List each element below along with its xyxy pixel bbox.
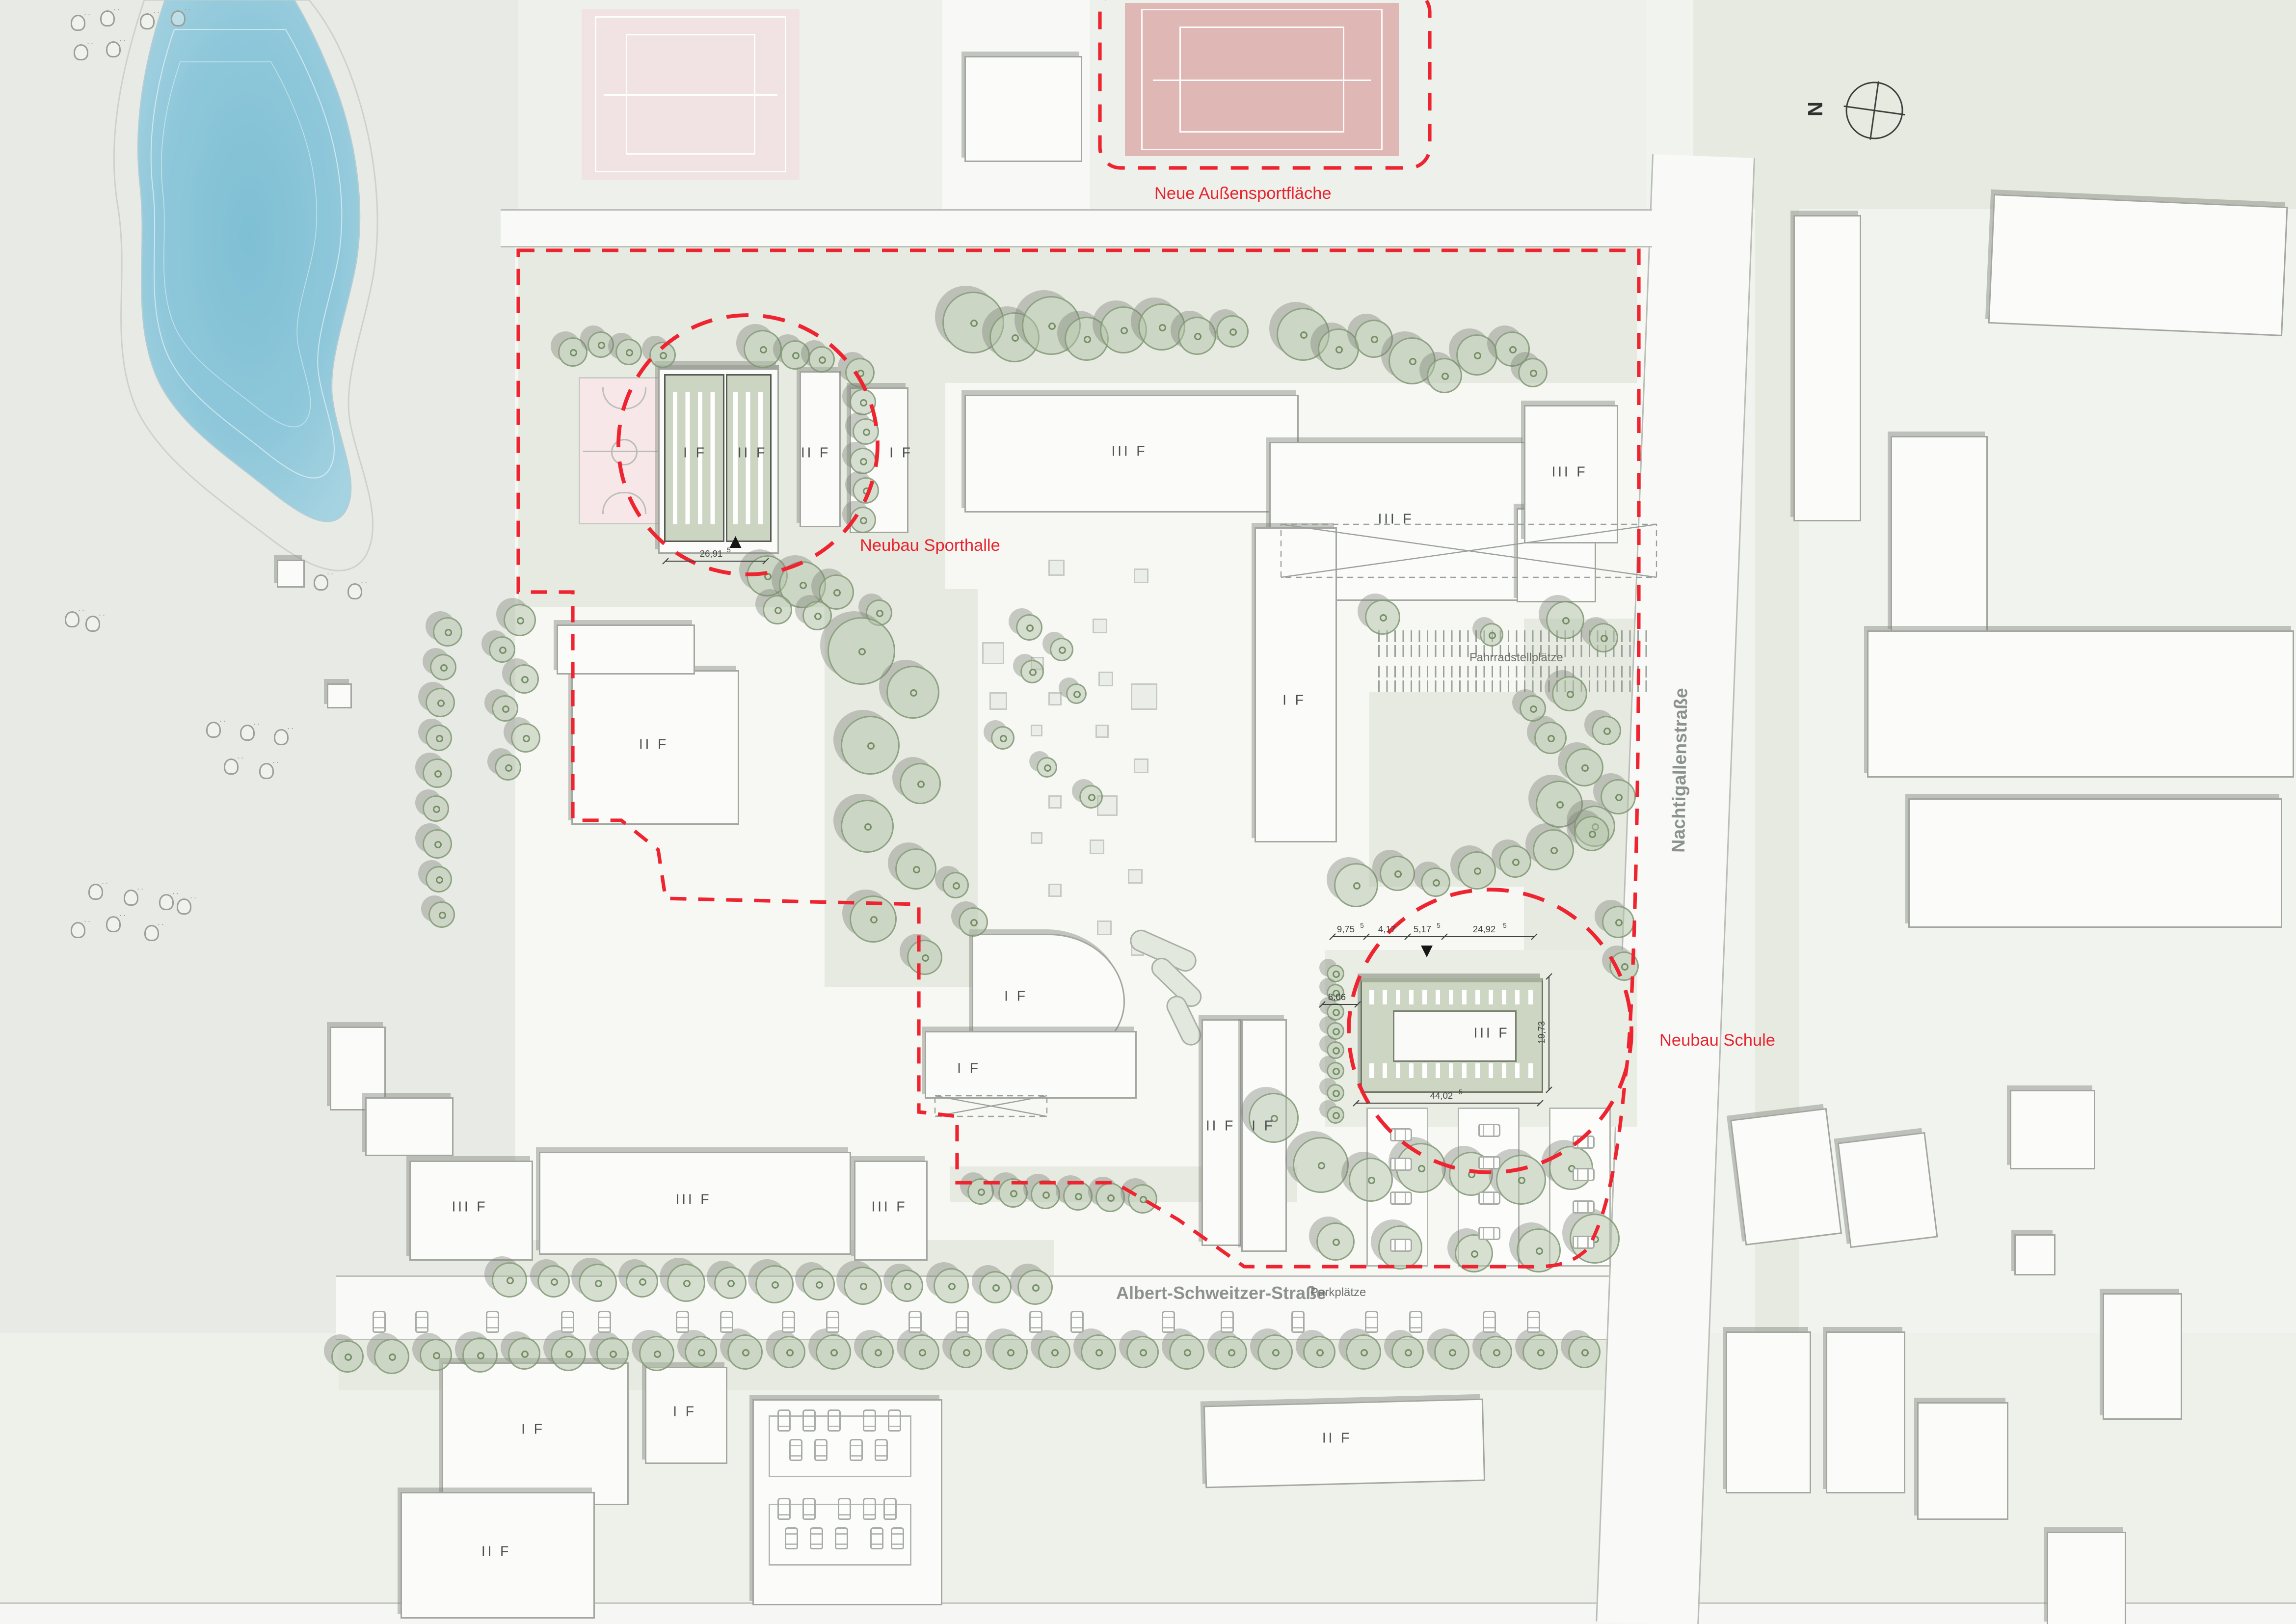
school-window-band-bottom bbox=[1369, 1063, 1534, 1078]
lawn-patch bbox=[1693, 0, 2296, 209]
car-icon bbox=[1162, 1311, 1175, 1333]
tree-icon bbox=[1434, 1334, 1469, 1370]
tree-icon bbox=[1017, 1270, 1053, 1305]
tree-icon bbox=[1421, 867, 1450, 897]
courtyard-pad bbox=[1095, 725, 1109, 738]
tree-icon bbox=[1574, 816, 1609, 851]
bike-racks-row bbox=[1378, 680, 1652, 692]
tree-icon bbox=[1095, 1183, 1125, 1212]
shrub-icon bbox=[106, 41, 121, 57]
building bbox=[1908, 798, 2282, 928]
floor-count-label: I F bbox=[889, 446, 913, 462]
tree-icon bbox=[587, 331, 614, 358]
shrub-icon bbox=[177, 898, 191, 915]
tree-icon bbox=[1327, 1106, 1344, 1124]
tree-icon bbox=[1365, 599, 1400, 635]
car-icon bbox=[1029, 1311, 1042, 1333]
floor-count-label: III F bbox=[675, 1192, 711, 1209]
courtyard-pad bbox=[1093, 619, 1107, 633]
tree-icon bbox=[1327, 1003, 1344, 1021]
tree-icon bbox=[667, 1264, 705, 1302]
car-icon bbox=[802, 1409, 816, 1432]
tree-icon bbox=[1063, 1181, 1093, 1211]
tree-icon bbox=[967, 1178, 994, 1205]
label-fahrradstellplaetze: Fahrradstellplätze bbox=[1469, 651, 1563, 664]
tree-icon bbox=[1589, 623, 1618, 652]
tree-icon bbox=[1349, 1158, 1393, 1202]
basketball-court bbox=[579, 377, 667, 524]
tree-icon bbox=[1178, 317, 1216, 355]
car-icon bbox=[1070, 1311, 1084, 1333]
tree-icon bbox=[1327, 1022, 1344, 1040]
tree-icon bbox=[1334, 863, 1378, 907]
floor-count-label: III F bbox=[452, 1200, 487, 1216]
tree-icon bbox=[615, 339, 642, 365]
car-icon bbox=[850, 1439, 863, 1461]
building bbox=[925, 1031, 1137, 1099]
tree-icon bbox=[1520, 695, 1546, 722]
courtyard-pad bbox=[1048, 560, 1065, 576]
tree-icon bbox=[950, 1336, 982, 1368]
car-icon bbox=[1390, 1128, 1412, 1141]
floor-count-label: I F bbox=[521, 1422, 545, 1438]
building bbox=[1917, 1402, 2008, 1520]
car-icon bbox=[863, 1409, 876, 1432]
tree-icon bbox=[685, 1336, 717, 1368]
tree-icon bbox=[714, 1267, 747, 1299]
plan-canvas: I FII FII FI FIII FIII FIII FI FII FI FI… bbox=[0, 0, 2296, 1624]
floor-count-label: I F bbox=[1282, 693, 1306, 709]
shrub-icon bbox=[171, 10, 186, 27]
tree-icon bbox=[1327, 965, 1344, 982]
tree-icon bbox=[1016, 614, 1042, 641]
tennis-net-line bbox=[1152, 80, 1371, 81]
tree-icon bbox=[1126, 1336, 1159, 1368]
floor-count-label: III F bbox=[1551, 465, 1587, 481]
shrub-icon bbox=[224, 758, 239, 775]
tree-icon bbox=[1534, 722, 1567, 754]
tree-icon bbox=[426, 866, 452, 893]
tree-icon bbox=[331, 1340, 364, 1373]
tree-icon bbox=[1565, 748, 1603, 786]
tree-icon bbox=[1216, 315, 1249, 348]
car-icon bbox=[676, 1311, 689, 1333]
tree-icon bbox=[1456, 334, 1497, 376]
car-icon bbox=[789, 1439, 802, 1461]
car-icon bbox=[1573, 1168, 1595, 1181]
shrub-icon bbox=[74, 44, 88, 60]
car-icon bbox=[1365, 1311, 1378, 1333]
tree-icon bbox=[596, 1337, 629, 1370]
car-icon bbox=[1483, 1311, 1496, 1333]
tree-icon bbox=[1518, 358, 1548, 387]
tree-icon bbox=[426, 725, 452, 751]
label-nachtigallenstrasse: Nachtigallenstraße bbox=[1668, 688, 1692, 853]
tree-icon bbox=[907, 940, 942, 975]
tree-icon bbox=[1517, 1228, 1561, 1272]
label-new-sport-area: Neue Außensportfläche bbox=[1154, 186, 1332, 203]
building bbox=[327, 683, 352, 708]
tree-icon bbox=[1480, 1336, 1512, 1368]
courtyard-pad bbox=[1048, 884, 1062, 897]
car-icon bbox=[891, 1527, 904, 1549]
floor-count-label: III F bbox=[1473, 1026, 1509, 1042]
tree-icon bbox=[639, 1336, 674, 1371]
car-icon bbox=[883, 1498, 897, 1520]
tree-icon bbox=[511, 723, 540, 753]
tree-icon bbox=[850, 895, 897, 943]
car-icon bbox=[561, 1311, 574, 1333]
building bbox=[1891, 436, 1988, 633]
court-key-arc-top bbox=[602, 387, 646, 409]
courtyard-pad bbox=[1048, 795, 1062, 809]
tree-icon bbox=[850, 507, 876, 533]
car-icon bbox=[1527, 1311, 1540, 1333]
tree-icon bbox=[1079, 785, 1103, 809]
tree-icon bbox=[853, 418, 879, 445]
building bbox=[1838, 1132, 1938, 1248]
tree-icon bbox=[850, 389, 876, 415]
tree-icon bbox=[1391, 1336, 1424, 1368]
tree-icon bbox=[773, 1336, 805, 1368]
shrub-icon bbox=[159, 894, 174, 910]
tree-icon bbox=[1496, 1155, 1546, 1205]
tree-icon bbox=[1602, 906, 1634, 938]
car-icon bbox=[598, 1311, 611, 1333]
tree-icon bbox=[1050, 638, 1073, 661]
tree-icon bbox=[495, 754, 521, 781]
tree-icon bbox=[433, 617, 462, 647]
tree-icon bbox=[1427, 358, 1462, 393]
floor-count-label: III F bbox=[1378, 512, 1414, 528]
building bbox=[1730, 1108, 1842, 1245]
car-icon bbox=[415, 1311, 428, 1333]
tree-icon bbox=[1480, 623, 1503, 647]
tree-icon bbox=[430, 654, 456, 680]
tree-icon bbox=[1533, 829, 1574, 870]
tree-icon bbox=[1568, 1336, 1601, 1368]
car-icon bbox=[1573, 1200, 1595, 1214]
tree-icon bbox=[579, 1264, 617, 1302]
tree-icon bbox=[900, 763, 941, 804]
courtyard-pad bbox=[982, 642, 1004, 664]
courtyard-pad bbox=[1097, 920, 1112, 935]
tree-icon bbox=[626, 1265, 658, 1298]
tree-icon bbox=[763, 595, 792, 624]
building bbox=[277, 560, 305, 588]
building bbox=[1826, 1331, 1905, 1493]
building bbox=[964, 56, 1082, 162]
car-icon bbox=[835, 1527, 848, 1549]
car-icon bbox=[863, 1498, 876, 1520]
label-albert-schweitzer-strasse: Albert-Schweitzer-Straße bbox=[1116, 1283, 1326, 1303]
building bbox=[557, 624, 695, 675]
car-icon bbox=[908, 1311, 922, 1333]
car-icon bbox=[1478, 1156, 1500, 1169]
car-icon bbox=[1390, 1158, 1412, 1171]
building bbox=[2014, 1234, 2056, 1275]
floor-count-label: I F bbox=[1252, 1119, 1275, 1135]
building bbox=[2010, 1090, 2095, 1169]
tree-icon bbox=[744, 330, 782, 368]
floor-count-label: I F bbox=[673, 1405, 696, 1421]
tree-icon bbox=[1293, 1137, 1349, 1193]
tree-icon bbox=[1066, 683, 1087, 704]
tree-icon bbox=[508, 1337, 540, 1370]
car-icon bbox=[956, 1311, 969, 1333]
tree-icon bbox=[844, 1267, 882, 1305]
tree-icon bbox=[1552, 676, 1587, 711]
floor-count-label: III F bbox=[871, 1200, 907, 1216]
bottom-road bbox=[0, 1602, 2296, 1624]
tree-icon bbox=[755, 1265, 794, 1303]
building bbox=[2103, 1293, 2182, 1420]
tree-icon bbox=[504, 604, 536, 636]
shrub-icon bbox=[274, 729, 289, 745]
tree-icon bbox=[853, 477, 879, 504]
courtyard-pad bbox=[1090, 839, 1104, 854]
tennis-court-new bbox=[1125, 3, 1399, 156]
car-icon bbox=[875, 1439, 888, 1461]
tree-icon bbox=[979, 1271, 1012, 1303]
car-icon bbox=[777, 1498, 791, 1520]
floor-count-label: I F bbox=[683, 446, 707, 462]
tree-icon bbox=[489, 636, 515, 663]
building bbox=[1726, 1331, 1811, 1493]
tennis-net-line bbox=[603, 94, 777, 96]
floor-count-label: III F bbox=[1111, 444, 1147, 460]
tree-icon bbox=[423, 758, 452, 788]
car-icon bbox=[888, 1409, 901, 1432]
tree-icon bbox=[904, 1334, 939, 1370]
tree-icon bbox=[1081, 1334, 1116, 1370]
car-icon bbox=[785, 1527, 798, 1549]
label-parkplaetze: Parkplätze bbox=[1310, 1286, 1366, 1299]
tree-icon bbox=[428, 901, 455, 928]
site-plan: I FII FII FI FIII FIII FIII FI FII FI FI… bbox=[0, 0, 2296, 1624]
tree-icon bbox=[1020, 660, 1044, 683]
tree-icon bbox=[509, 664, 539, 694]
tree-icon bbox=[808, 346, 835, 373]
tree-icon bbox=[850, 448, 876, 474]
courtyard-pad bbox=[1134, 568, 1148, 583]
car-icon bbox=[814, 1439, 828, 1461]
shrub-icon bbox=[240, 725, 255, 741]
courtyard-pad bbox=[1031, 725, 1042, 736]
tree-icon bbox=[934, 1268, 969, 1303]
building bbox=[1255, 527, 1337, 842]
floor-count-label: I F bbox=[1004, 989, 1028, 1005]
building bbox=[365, 1097, 454, 1156]
tree-icon bbox=[423, 829, 452, 859]
tree-icon bbox=[1592, 716, 1621, 745]
car-icon bbox=[777, 1409, 791, 1432]
tree-icon bbox=[492, 1262, 527, 1298]
tennis-court-existing bbox=[582, 9, 800, 180]
tree-icon bbox=[1327, 1041, 1344, 1059]
car-icon bbox=[1221, 1311, 1234, 1333]
tree-icon bbox=[423, 795, 449, 822]
tree-icon bbox=[1522, 1334, 1558, 1370]
tree-icon bbox=[1355, 320, 1393, 358]
shrub-icon bbox=[85, 616, 100, 632]
floor-count-label: II F bbox=[481, 1544, 511, 1561]
building bbox=[1867, 630, 2294, 778]
tree-icon bbox=[1380, 856, 1415, 891]
tree-icon bbox=[374, 1339, 409, 1374]
tree-icon bbox=[992, 1334, 1028, 1370]
tree-icon bbox=[959, 907, 988, 937]
shrub-icon bbox=[106, 916, 121, 932]
tree-icon bbox=[828, 617, 895, 685]
courtyard-pad bbox=[989, 692, 1007, 710]
car-icon bbox=[1478, 1227, 1500, 1240]
tree-icon bbox=[1031, 1180, 1060, 1209]
car-icon bbox=[870, 1527, 883, 1549]
courtyard-pad bbox=[1031, 832, 1042, 844]
car-icon bbox=[838, 1498, 851, 1520]
tree-icon bbox=[991, 726, 1015, 750]
shrub-icon bbox=[314, 574, 328, 591]
shrub-icon bbox=[206, 722, 221, 738]
car-icon bbox=[782, 1311, 795, 1333]
tree-icon bbox=[426, 688, 455, 717]
tree-icon bbox=[1318, 328, 1359, 370]
courtyard-pad bbox=[1131, 683, 1157, 710]
tree-icon bbox=[1499, 845, 1531, 878]
building bbox=[1988, 194, 2288, 336]
tree-icon bbox=[942, 872, 969, 898]
car-icon bbox=[828, 1409, 841, 1432]
courtyard-pad bbox=[1048, 692, 1062, 705]
tree-icon bbox=[537, 1265, 570, 1298]
tree-icon bbox=[886, 666, 939, 719]
car-icon bbox=[1390, 1191, 1412, 1205]
tree-icon bbox=[861, 1336, 894, 1368]
label-new-gym: Neubau Sporthalle bbox=[860, 538, 1000, 555]
car-icon bbox=[1573, 1236, 1595, 1249]
floor-count-label: II F bbox=[738, 446, 767, 462]
label-new-school: Neubau Schule bbox=[1659, 1032, 1775, 1050]
car-icon bbox=[810, 1527, 823, 1549]
tree-icon bbox=[1128, 1184, 1157, 1214]
tree-icon bbox=[1327, 1062, 1344, 1080]
car-icon bbox=[1478, 1191, 1500, 1205]
shrub-icon bbox=[100, 10, 115, 27]
shrub-icon bbox=[124, 890, 138, 906]
school-window-band-top bbox=[1369, 990, 1534, 1004]
floor-count-label: I F bbox=[957, 1061, 981, 1078]
tree-icon bbox=[1609, 951, 1639, 981]
tree-icon bbox=[1546, 601, 1584, 639]
court-center-circle bbox=[611, 439, 638, 465]
tree-icon bbox=[462, 1337, 498, 1373]
shrub-icon bbox=[88, 884, 103, 900]
tree-icon bbox=[1038, 1336, 1070, 1368]
tree-icon bbox=[492, 695, 518, 722]
car-icon bbox=[802, 1498, 816, 1520]
car-icon bbox=[1478, 1124, 1500, 1137]
tree-icon bbox=[841, 800, 894, 853]
car-icon bbox=[373, 1311, 386, 1333]
shrub-icon bbox=[71, 15, 85, 31]
tree-icon bbox=[1037, 757, 1057, 778]
tree-icon bbox=[1601, 779, 1636, 814]
floor-count-label: II F bbox=[639, 737, 668, 754]
courtyard-pad bbox=[1098, 672, 1113, 686]
car-icon bbox=[486, 1311, 499, 1333]
tree-icon bbox=[802, 1268, 835, 1300]
shrub-icon bbox=[144, 925, 159, 941]
car-icon bbox=[720, 1311, 733, 1333]
floor-count-label: II F bbox=[1206, 1119, 1235, 1135]
building bbox=[1793, 215, 1861, 521]
tree-icon bbox=[1215, 1336, 1247, 1368]
tree-icon bbox=[780, 340, 810, 370]
shrub-icon bbox=[65, 611, 80, 627]
tree-icon bbox=[1303, 1336, 1335, 1368]
shrub-icon bbox=[347, 583, 362, 599]
tree-icon bbox=[1346, 1334, 1381, 1370]
floor-count-label: II F bbox=[1322, 1431, 1352, 1447]
north-letter: N bbox=[1804, 102, 1827, 116]
car-icon bbox=[1573, 1136, 1595, 1149]
building bbox=[2047, 1532, 2126, 1624]
shrub-icon bbox=[71, 922, 85, 938]
tree-icon bbox=[727, 1334, 763, 1370]
courtyard-pad bbox=[1134, 758, 1148, 773]
court-key-arc-bottom bbox=[602, 492, 646, 514]
tree-icon bbox=[649, 342, 676, 368]
tree-icon bbox=[1138, 303, 1185, 351]
tree-icon bbox=[1169, 1334, 1204, 1370]
tree-icon bbox=[891, 1270, 923, 1302]
tree-icon bbox=[1327, 984, 1344, 1001]
bike-racks-row bbox=[1378, 666, 1652, 677]
car-icon bbox=[1409, 1311, 1422, 1333]
shrub-icon bbox=[259, 763, 274, 779]
north-path bbox=[501, 209, 1652, 247]
courtyard-pad bbox=[1128, 869, 1143, 884]
tree-icon bbox=[802, 601, 832, 630]
tree-icon bbox=[1257, 1334, 1293, 1370]
floor-count-label: II F bbox=[801, 446, 830, 462]
tree-icon bbox=[841, 716, 900, 775]
tree-icon bbox=[551, 1336, 586, 1371]
car-icon bbox=[1291, 1311, 1305, 1333]
tree-icon bbox=[998, 1178, 1028, 1208]
tree-icon bbox=[1458, 851, 1496, 890]
shrub-icon bbox=[140, 13, 155, 29]
tree-icon bbox=[1249, 1093, 1299, 1143]
tree-icon bbox=[895, 848, 936, 890]
tree-icon bbox=[816, 1334, 851, 1370]
tree-icon bbox=[1327, 1084, 1344, 1102]
tree-icon bbox=[420, 1339, 452, 1371]
car-icon bbox=[1390, 1239, 1412, 1252]
tree-icon bbox=[558, 337, 587, 367]
car-icon bbox=[826, 1311, 839, 1333]
tree-icon bbox=[845, 358, 875, 387]
tree-icon bbox=[1316, 1222, 1355, 1261]
